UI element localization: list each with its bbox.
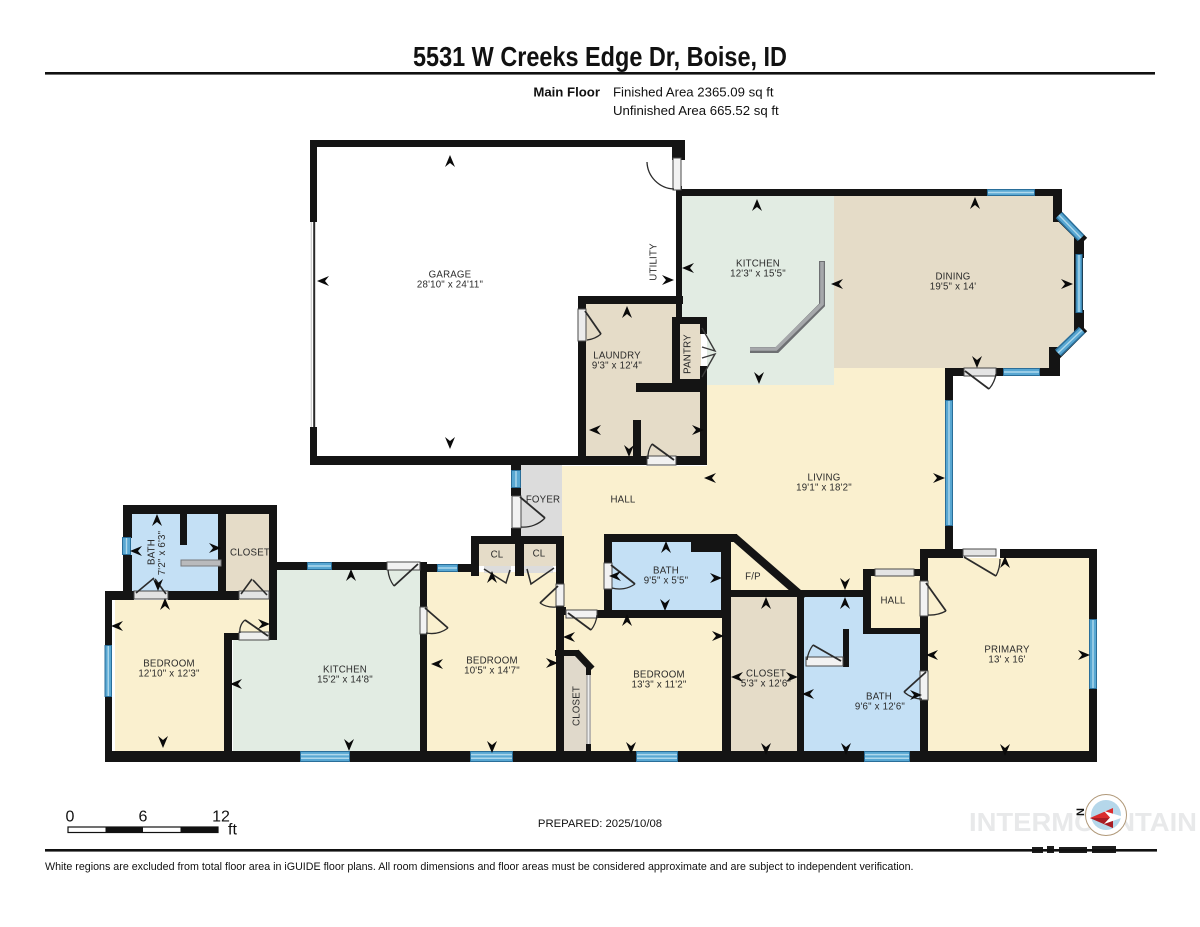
svg-text:5531 W Creeks Edge Dr, Boise,: 5531 W Creeks Edge Dr, Boise, ID: [413, 41, 787, 72]
svg-text:12'3" x 15'5": 12'3" x 15'5": [730, 269, 786, 280]
svg-text:10'5" x 14'7": 10'5" x 14'7": [464, 666, 520, 677]
svg-text:13' x 16': 13' x 16': [988, 655, 1025, 666]
svg-text:CLOSET: CLOSET: [230, 548, 270, 559]
svg-text:Main Floor: Main Floor: [533, 85, 600, 100]
svg-text:CLOSET: CLOSET: [572, 686, 583, 726]
svg-text:9'6" x 12'6": 9'6" x 12'6": [855, 702, 906, 713]
svg-text:13'3" x 11'2": 13'3" x 11'2": [631, 680, 686, 691]
svg-text:PREPARED: 2025/10/08: PREPARED: 2025/10/08: [538, 818, 662, 830]
svg-text:CL: CL: [491, 550, 504, 561]
svg-text:ft: ft: [228, 822, 237, 839]
svg-text:BATH: BATH: [147, 539, 158, 565]
svg-text:19'1" x 18'2": 19'1" x 18'2": [796, 483, 852, 494]
svg-text:0: 0: [66, 809, 75, 826]
svg-text:9'5" x 5'5": 9'5" x 5'5": [644, 576, 689, 587]
svg-text:19'5" x 14': 19'5" x 14': [930, 282, 977, 293]
svg-text:UTILITY: UTILITY: [649, 243, 660, 281]
svg-text:HALL: HALL: [880, 596, 905, 607]
svg-text:5'3" x 12'6": 5'3" x 12'6": [741, 679, 792, 690]
svg-text:HALL: HALL: [610, 495, 635, 506]
svg-text:Finished Area 2365.09 sq ft: Finished Area 2365.09 sq ft: [613, 85, 774, 100]
svg-text:7'2" x 6'3": 7'2" x 6'3": [157, 530, 168, 575]
svg-text:12'10" x 12'3": 12'10" x 12'3": [138, 669, 200, 680]
svg-text:F/P: F/P: [745, 572, 761, 583]
svg-text:PANTRY: PANTRY: [683, 334, 694, 374]
svg-text:White regions are excluded fro: White regions are excluded from total fl…: [45, 861, 914, 873]
svg-text:28'10" x 24'11": 28'10" x 24'11": [417, 280, 484, 291]
svg-text:9'3" x 12'4": 9'3" x 12'4": [592, 361, 643, 372]
svg-text:6: 6: [139, 809, 148, 826]
svg-text:N: N: [1075, 808, 1087, 816]
svg-text:Unfinished Area 665.52 sq ft: Unfinished Area 665.52 sq ft: [613, 103, 779, 118]
svg-text:FOYER: FOYER: [526, 495, 560, 506]
svg-text:CL: CL: [533, 549, 546, 560]
svg-text:15'2" x 14'8": 15'2" x 14'8": [317, 675, 373, 686]
